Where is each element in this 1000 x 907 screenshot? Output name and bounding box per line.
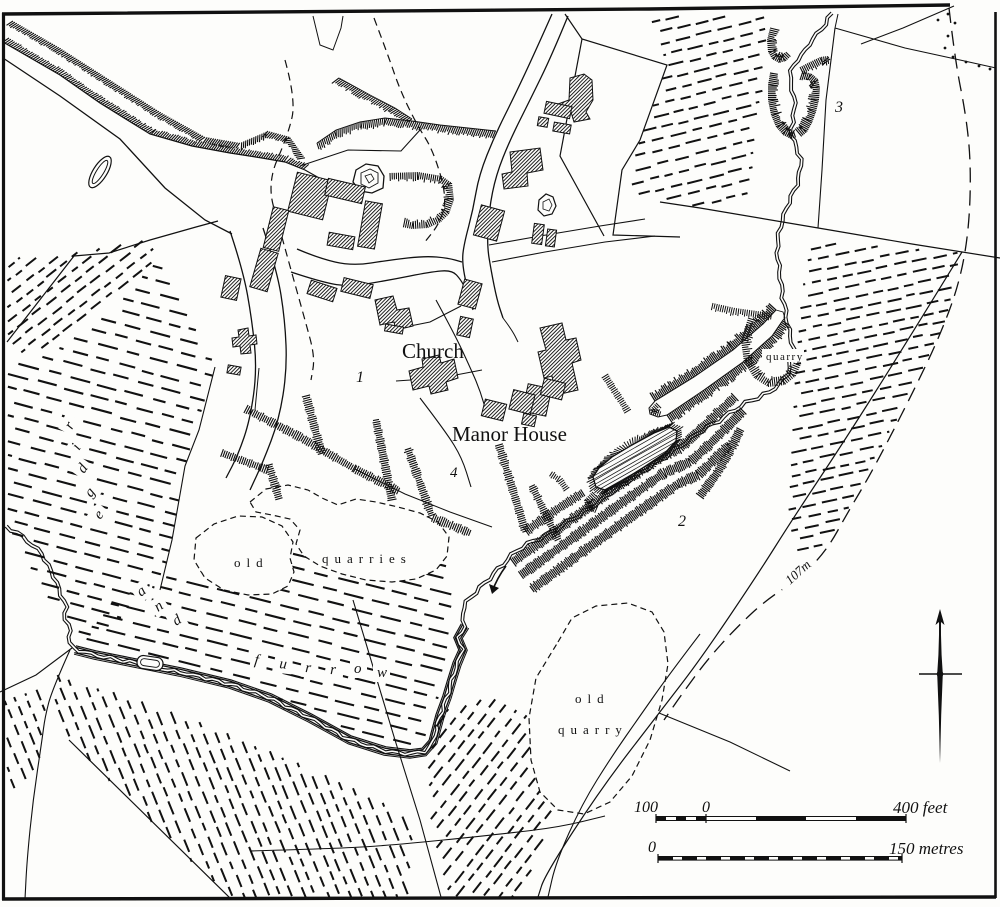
svg-text:Manor House: Manor House [452, 422, 567, 446]
svg-text:o: o [354, 661, 362, 677]
svg-text:2: 2 [678, 513, 686, 530]
svg-text:quarries: quarries [322, 551, 412, 566]
svg-text:100: 100 [634, 799, 658, 816]
svg-text:old: old [575, 691, 610, 706]
svg-text:r: r [330, 662, 337, 678]
svg-text:quarry: quarry [558, 722, 628, 737]
svg-text:0: 0 [702, 799, 710, 816]
svg-text:Church: Church [402, 339, 464, 363]
svg-text:1: 1 [356, 369, 364, 386]
svg-text:4: 4 [450, 465, 458, 481]
svg-text:quarry: quarry [766, 351, 804, 363]
svg-text:150 metres: 150 metres [889, 839, 964, 858]
svg-text:3: 3 [834, 99, 843, 116]
svg-text:w: w [377, 665, 387, 681]
svg-text:400 feet: 400 feet [893, 798, 949, 817]
svg-text:old: old [234, 555, 269, 570]
svg-text:0: 0 [648, 839, 656, 856]
